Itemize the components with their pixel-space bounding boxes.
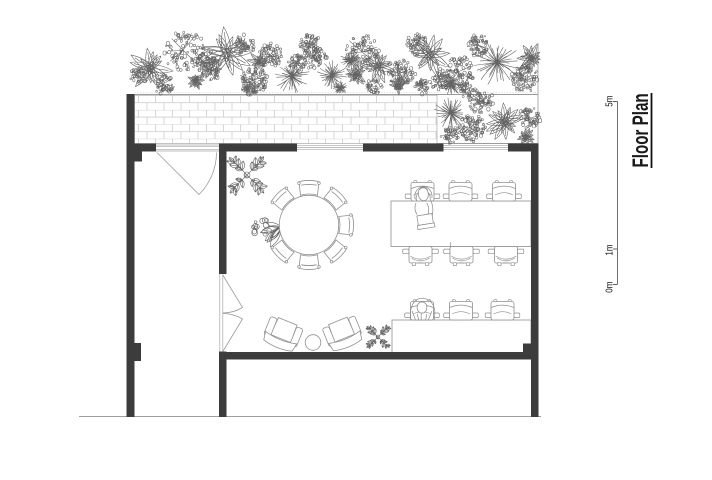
svg-text:1m: 1m [604,244,615,255]
svg-text:Floor Plan: Floor Plan [629,93,653,167]
svg-text:0m: 0m [604,282,615,293]
svg-text:5m: 5m [604,96,615,107]
